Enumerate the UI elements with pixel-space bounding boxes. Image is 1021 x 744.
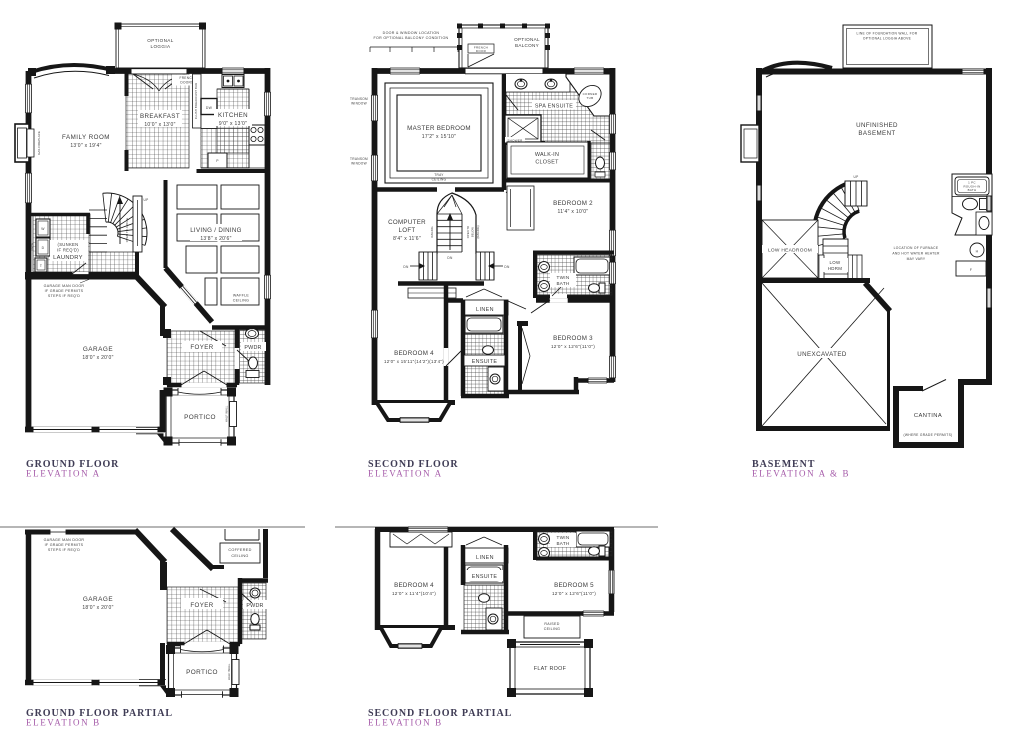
svg-text:FAMILY ROOM: FAMILY ROOM: [62, 134, 110, 141]
svg-text:ELEVATION A: ELEVATION A: [26, 469, 101, 479]
svg-text:IF GRADE PERMITS: IF GRADE PERMITS: [45, 543, 84, 547]
svg-text:HALF WALL: HALF WALL: [227, 663, 231, 680]
svg-text:TUB: TUB: [587, 96, 594, 100]
svg-text:UP: UP: [853, 175, 858, 179]
svg-text:(SUNKEN: (SUNKEN: [58, 242, 79, 247]
svg-text:12'0" x 12'6"(11'0"): 12'0" x 12'6"(11'0"): [551, 344, 595, 349]
svg-text:CANTINA: CANTINA: [914, 413, 942, 419]
svg-text:WAFFLE: WAFFLE: [233, 294, 250, 298]
svg-text:CEILING: CEILING: [432, 178, 447, 182]
svg-text:HDRM: HDRM: [828, 266, 842, 271]
svg-text:PORTICO: PORTICO: [184, 414, 216, 421]
svg-text:DOOR & WINDOW LOCATION: DOOR & WINDOW LOCATION: [383, 31, 440, 35]
svg-text:KITCHEN: KITCHEN: [218, 112, 248, 119]
svg-text:ELEVATION B: ELEVATION B: [26, 718, 101, 728]
svg-text:UP: UP: [143, 198, 148, 202]
svg-text:TRANSOM: TRANSOM: [350, 97, 368, 101]
svg-text:OPTIONAL LOGGIA ABOVE: OPTIONAL LOGGIA ABOVE: [863, 37, 912, 41]
svg-text:BREAKFAST: BREAKFAST: [140, 113, 180, 120]
svg-text:RAISED: RAISED: [544, 622, 559, 626]
svg-text:DN: DN: [504, 265, 510, 269]
svg-text:UNFINISHED: UNFINISHED: [856, 122, 898, 129]
svg-text:TWIN: TWIN: [557, 535, 570, 540]
svg-text:CEILING: CEILING: [544, 627, 560, 631]
svg-text:FOYER: FOYER: [190, 344, 213, 351]
svg-text:GARAGE: GARAGE: [83, 346, 113, 353]
svg-text:RAILING: RAILING: [430, 226, 434, 237]
svg-text:HALF WALL: HALF WALL: [224, 405, 228, 422]
svg-text:LIVING / DINING: LIVING / DINING: [190, 227, 242, 234]
svg-text:SPA ENSUITE: SPA ENSUITE: [535, 104, 573, 110]
svg-text:LOFT: LOFT: [398, 227, 415, 234]
svg-text:LOW HEADROOM: LOW HEADROOM: [768, 248, 812, 254]
svg-text:LINEN: LINEN: [476, 555, 494, 561]
svg-text:FLAT ROOF: FLAT ROOF: [534, 666, 567, 672]
svg-text:PWDR: PWDR: [246, 603, 263, 609]
svg-text:DOOR: DOOR: [476, 49, 487, 53]
svg-text:WINDOW: WINDOW: [351, 162, 367, 166]
svg-text:TRANSOM: TRANSOM: [350, 157, 368, 161]
svg-text:BALCONY: BALCONY: [515, 43, 539, 48]
svg-text:MASTER BEDROOM: MASTER BEDROOM: [407, 125, 471, 132]
svg-text:STEPS IF REQ'D: STEPS IF REQ'D: [48, 294, 80, 298]
svg-text:BEDROOM 4: BEDROOM 4: [394, 350, 434, 357]
svg-text:WINDOW: WINDOW: [351, 102, 367, 106]
svg-text:LINE OF FOUNDATION WALL FOR: LINE OF FOUNDATION WALL FOR: [857, 32, 918, 36]
svg-text:GARAGE: GARAGE: [83, 596, 113, 603]
svg-text:LAUNDRY: LAUNDRY: [53, 255, 83, 261]
svg-text:ELEVATION B: ELEVATION B: [368, 718, 443, 728]
svg-text:OPTIONAL: OPTIONAL: [514, 37, 540, 42]
svg-text:LOGGIA: LOGGIA: [150, 44, 171, 49]
svg-text:BEDROOM 5: BEDROOM 5: [554, 582, 594, 589]
svg-text:H: H: [976, 250, 979, 254]
svg-text:DN: DN: [447, 256, 453, 260]
svg-text:TRAY: TRAY: [434, 173, 444, 177]
svg-text:CLOSET: CLOSET: [535, 160, 559, 166]
svg-text:8'4" x 11'6": 8'4" x 11'6": [393, 236, 421, 242]
svg-text:OPEN TO ARCHE: OPEN TO ARCHE: [125, 218, 129, 243]
svg-text:ELEVATION A: ELEVATION A: [368, 469, 443, 479]
svg-text:BELOW: BELOW: [471, 227, 475, 237]
svg-text:FOYER: FOYER: [190, 602, 213, 609]
svg-text:ENSUITE: ENSUITE: [472, 359, 498, 365]
svg-text:17'2" x 15'10": 17'2" x 15'10": [422, 134, 456, 140]
svg-text:WALK-IN: WALK-IN: [535, 152, 559, 158]
svg-text:BEDROOM 2: BEDROOM 2: [553, 200, 593, 207]
svg-text:ELEVATION A & B: ELEVATION A & B: [752, 469, 850, 479]
svg-text:13'0" x 19'4": 13'0" x 19'4": [70, 143, 101, 149]
svg-text:TWIN: TWIN: [557, 275, 570, 280]
svg-text:12'0" x 11'4"(10'4"): 12'0" x 11'4"(10'4"): [392, 591, 436, 596]
svg-text:T: T: [40, 264, 42, 268]
svg-text:PWDR: PWDR: [244, 345, 261, 351]
svg-text:GARAGE MAN DOOR: GARAGE MAN DOOR: [44, 538, 85, 542]
svg-text:BATH: BATH: [556, 281, 569, 286]
svg-text:LOCATION OF FURNACE: LOCATION OF FURNACE: [894, 246, 939, 250]
svg-text:BATH: BATH: [968, 188, 977, 192]
svg-text:GARAGE MAN DOOR: GARAGE MAN DOOR: [44, 284, 85, 288]
svg-text:W: W: [41, 227, 45, 231]
svg-text:P: P: [216, 159, 219, 163]
svg-text:CEILING: CEILING: [233, 299, 249, 303]
svg-text:18'0" x 20'0": 18'0" x 20'0": [82, 355, 113, 361]
svg-text:12'0" x 12'6"(11'0"): 12'0" x 12'6"(11'0"): [552, 591, 596, 596]
svg-text:BEDROOM 3: BEDROOM 3: [553, 335, 593, 342]
svg-text:UNEXCAVATED: UNEXCAVATED: [797, 351, 847, 358]
svg-text:FLUSH BREAKFAST BAR: FLUSH BREAKFAST BAR: [194, 82, 198, 119]
svg-text:IF GRADE PERMITS: IF GRADE PERMITS: [45, 289, 84, 293]
svg-text:10'0" x 13'0": 10'0" x 13'0": [144, 122, 175, 128]
svg-text:MAY VARY: MAY VARY: [907, 257, 926, 261]
svg-text:F: F: [970, 268, 972, 272]
svg-text:BASEMENT: BASEMENT: [858, 130, 895, 137]
svg-text:13'8" x 20'6": 13'8" x 20'6": [200, 236, 231, 242]
svg-text:CEILING: CEILING: [231, 554, 248, 558]
svg-text:BATH: BATH: [556, 541, 569, 546]
svg-text:11'4" x 10'0": 11'4" x 10'0": [558, 209, 589, 215]
svg-text:GAS FIREPLACE: GAS FIREPLACE: [37, 131, 41, 155]
svg-text:(RAILING): (RAILING): [476, 225, 480, 238]
svg-text:DOORS: DOORS: [180, 81, 193, 85]
svg-text:DN: DN: [403, 265, 409, 269]
svg-text:ENSUITE: ENSUITE: [472, 574, 498, 580]
svg-text:9'0" x 13'0": 9'0" x 13'0": [219, 121, 247, 127]
svg-text:OPTIONAL: OPTIONAL: [147, 38, 173, 43]
svg-text:AND HOT WATER HEATER: AND HOT WATER HEATER: [892, 252, 940, 256]
svg-text:18'0" x 20'0": 18'0" x 20'0": [82, 605, 113, 611]
svg-text:12'0" x 15'11"(14'2")(13'4"): 12'0" x 15'11"(14'2")(13'4"): [384, 359, 444, 364]
svg-text:STEPS IF REQ'D: STEPS IF REQ'D: [48, 548, 80, 552]
svg-text:LINEN: LINEN: [476, 307, 494, 313]
svg-text:LINEN: LINEN: [31, 243, 35, 251]
svg-text:IF REQ'D): IF REQ'D): [57, 248, 79, 253]
svg-text:PORTICO: PORTICO: [186, 669, 218, 676]
svg-text:OPEN TO: OPEN TO: [466, 225, 470, 238]
svg-text:DW: DW: [206, 106, 213, 110]
svg-text:FOR OPTIONAL BALCONY CONDITION: FOR OPTIONAL BALCONY CONDITION: [374, 36, 449, 40]
svg-text:COFFERED: COFFERED: [228, 548, 251, 552]
svg-text:D: D: [42, 246, 45, 250]
svg-text:(WHERE GRADE PERMITS): (WHERE GRADE PERMITS): [904, 433, 953, 437]
svg-text:BEDROOM 4: BEDROOM 4: [394, 582, 434, 589]
svg-text:COMPUTER: COMPUTER: [388, 219, 426, 226]
svg-text:LOW: LOW: [830, 260, 841, 265]
